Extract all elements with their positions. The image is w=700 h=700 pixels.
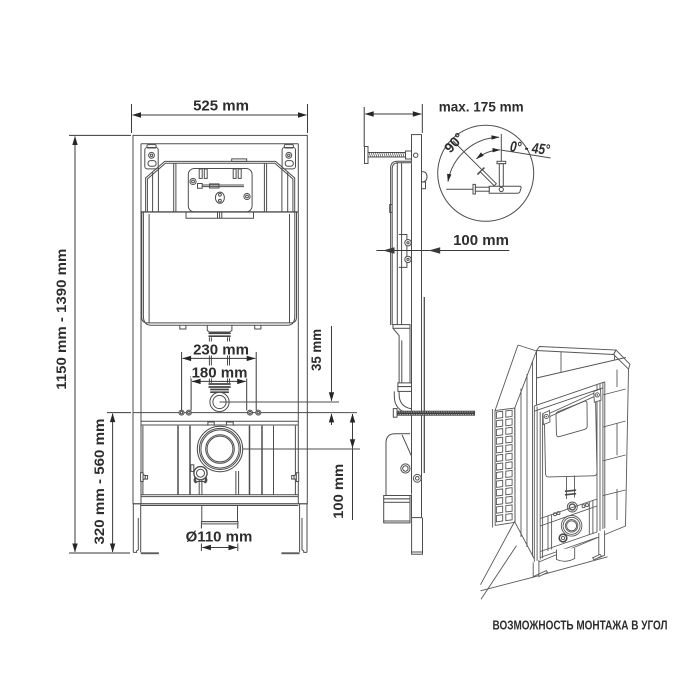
svg-text:230 mm: 230 mm [193,342,249,359]
svg-text:1150 mm - 1390 mm: 1150 mm - 1390 mm [54,249,69,390]
svg-text:35 mm: 35 mm [309,329,324,371]
svg-text:100 mm: 100 mm [331,464,346,519]
svg-text:max. 175 mm: max. 175 mm [439,99,524,115]
svg-text:ВОЗМОЖНОСТЬ МОНТАЖА В УГОЛ: ВОЗМОЖНОСТЬ МОНТАЖА В УГОЛ [493,618,668,633]
svg-text:180 mm: 180 mm [192,365,248,382]
svg-text:0° - 45°: 0° - 45° [509,138,551,158]
svg-text:Ø110 mm: Ø110 mm [186,529,253,546]
svg-text:100 mm: 100 mm [453,232,509,249]
svg-text:525 mm: 525 mm [193,98,249,115]
svg-text:90°: 90° [441,129,467,155]
svg-text:320 mm - 560 mm: 320 mm - 560 mm [92,419,107,545]
